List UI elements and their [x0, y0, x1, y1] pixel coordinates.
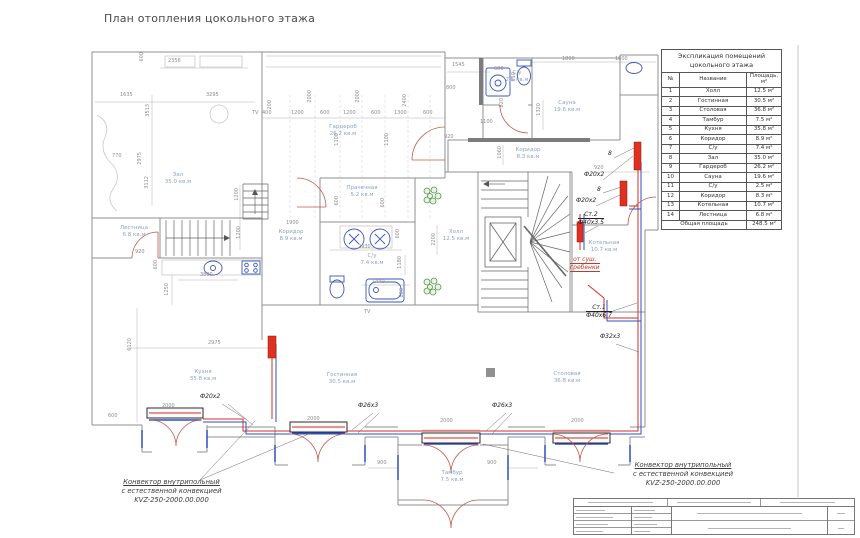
dim-label: 600: [371, 111, 381, 116]
schedule-row: 6Коридор8.9 м²: [662, 135, 782, 145]
title-block-project-name: [672, 507, 828, 535]
dim-label: 1200: [235, 188, 240, 201]
dim-label: 1100: [480, 120, 493, 125]
dim-label: 820: [500, 98, 505, 108]
dim-label: 2200: [432, 233, 437, 246]
schedule-row: 2Гостинная30.5 м²: [662, 97, 782, 107]
pipe-label-f20x2: Ф20х2: [200, 393, 220, 400]
room-label-kotelnaya: Котельная10.7 кв.м: [589, 240, 620, 254]
room-label-gostinaya: Гостинная30.5 кв.м: [327, 372, 357, 386]
dim-label: 920: [135, 250, 145, 255]
dim-label: 600: [423, 111, 433, 116]
dim-label: 1100: [335, 133, 340, 146]
schedule-title: Экспликация помещений цокольного этажа: [661, 49, 782, 72]
dim-label: 800: [446, 86, 456, 91]
dim-label: 1800: [562, 57, 575, 62]
dim-label: 1800: [615, 57, 628, 62]
title-block-top-row: [574, 499, 854, 507]
extension-lines: [290, 95, 430, 218]
room-label-prachechnaya: Прачечная5.2 кв.м: [346, 185, 377, 199]
title-block-dates: [632, 507, 672, 535]
room-label-lestnitsa: Лестница6.8 кв.м: [120, 225, 148, 239]
small-stairs: [243, 184, 268, 219]
thick-wall-corridor: [468, 138, 590, 142]
dim-label: 600: [154, 260, 159, 270]
pipe-label-f26x3: Ф26х3: [358, 402, 378, 409]
room-label-su1: С/у7.4 кв.м: [361, 253, 384, 267]
dim-label: 770: [112, 154, 122, 159]
schedule-row: 10Сауна19.6 м²: [662, 173, 782, 183]
dim-label: 3800: [200, 273, 213, 278]
dim-label: 1060: [498, 146, 503, 159]
dim-label: 2975: [138, 152, 143, 165]
dim-label: 600: [396, 229, 401, 239]
dim-label: 1200: [343, 111, 356, 116]
dim-label: 1440: [372, 280, 385, 285]
dim-label: 900: [377, 461, 387, 466]
dim-label: 600: [494, 67, 504, 72]
dim-label: 920: [444, 135, 454, 140]
dim-label: 1320: [537, 103, 542, 116]
riser-mark: 8: [608, 150, 612, 157]
dim-label: 1545: [452, 63, 465, 68]
title-block: [573, 498, 855, 535]
dim-label: 600: [381, 198, 386, 208]
schedule-row: 13Котельная10.7 м²: [662, 201, 782, 211]
room-label-kukhnya: Кухня35.8 кв.м: [190, 369, 216, 383]
dim-label: 2000: [162, 404, 175, 409]
dim-label: 900: [487, 461, 497, 466]
dim-label: 2000: [440, 419, 453, 424]
dim-label: 1250: [165, 283, 170, 296]
room-label-zal: Зал35.0 кв.м: [165, 172, 191, 186]
dim-label: 2000: [308, 90, 313, 103]
pipe-label-f32x3: Ф32х3: [600, 333, 620, 340]
corridor-stairs: [166, 220, 230, 256]
thick-wall-su: [479, 58, 483, 105]
schedule-row: 12Коридор8.3 м²: [662, 192, 782, 202]
dim-label: 6120: [128, 338, 133, 351]
door-swings: [132, 105, 656, 528]
dim-label: 2400: [403, 94, 408, 107]
schedule-row: 8Зал35.0 м²: [662, 154, 782, 164]
pipe-label-f20x2: Ф20х2: [576, 197, 596, 204]
dim-label: 2930: [358, 245, 371, 250]
tv-mark: TV: [252, 111, 258, 116]
dim-label: 2000: [571, 419, 584, 424]
schedule-row: 5Кухня35.8 м²: [662, 125, 782, 135]
dim-label: 800: [400, 288, 405, 298]
room-label-su2: С/у2.5 кв.м: [506, 70, 529, 84]
convector-annotation-right: Конвектор внутрипольный с естественной к…: [608, 461, 758, 489]
schedule-row: 9Гардероб26.2 м²: [662, 163, 782, 173]
room-label-koridor1: Коридор8.9 кв.м: [279, 229, 304, 243]
schedule-table: № Название Площадь, м² 1Холл12.5 м² 2Гос…: [661, 72, 782, 231]
dim-label: 2975: [208, 341, 221, 346]
riser-label-st1: Ст.1Ф40х6.7: [586, 304, 612, 319]
title-block-sheet-number: [828, 507, 854, 535]
schedule-total-row: Общая площадь 248.5 м²: [662, 220, 782, 230]
schedule-row: 3Столовая36.8 м²: [662, 106, 782, 116]
dim-label: 1180: [398, 256, 403, 269]
schedule-row: 1Холл12.5 м²: [662, 87, 782, 97]
dim-label: 1200: [291, 111, 304, 116]
riser-label-st2: Ст.2Ф40х3.5: [578, 211, 604, 226]
room-label-koridor2: Коридор8.3 кв.м: [516, 147, 541, 161]
room-label-kholl: Холл12.5 кв.м: [443, 229, 469, 243]
dim-label: 2356: [168, 59, 181, 64]
schedule-row: 14Лестница6.8 м²: [662, 211, 782, 221]
schedule-row: 4Тамбур7.5 м²: [662, 116, 782, 126]
pipe-label-f26x3: Ф26х3: [492, 402, 512, 409]
room-label-sauna: Сауна19.6 кв.м: [554, 100, 580, 114]
windows: [142, 420, 630, 480]
dim-label: 810: [512, 72, 517, 82]
dim-label: 1635: [120, 93, 133, 98]
dim-label: 2000: [356, 90, 361, 103]
convector-annotation-left: Конвектор внутрипольный с естественной к…: [84, 478, 259, 506]
dim-label: 1100: [385, 133, 390, 146]
schedule-row: 7С/у7.4 м²: [662, 144, 782, 154]
elevator-shaft: [485, 217, 521, 267]
schedule-row: 11С/у2.5 м²: [662, 182, 782, 192]
dim-label: 200: [268, 100, 273, 110]
dim-label: 3295: [206, 93, 219, 98]
schedule-header: № Название Площадь, м²: [662, 72, 782, 87]
page-title: План отопления цокольного этажа: [104, 12, 315, 25]
riser-mark: 8: [597, 186, 601, 193]
dim-label: 600: [335, 196, 340, 206]
room-label-stolovaya: Столовая36.8 кв.м: [553, 371, 580, 385]
dim-label: 600: [108, 414, 118, 419]
dim-label: 1900: [286, 221, 299, 226]
dim-label: 3112: [145, 176, 150, 189]
dim-label: 400: [262, 111, 272, 116]
heating-plan-sheet: План отопления цокольного этажа Зал35.0 …: [0, 0, 860, 538]
column: [486, 368, 495, 377]
dim-label: 1300: [394, 111, 407, 116]
dim-label: 1200: [237, 226, 242, 239]
pipe-label-f20x2: Ф20х2: [584, 171, 604, 178]
dim-label: 600: [140, 52, 145, 62]
tv-mark: TV: [364, 310, 370, 315]
dim-label: 600: [320, 111, 330, 116]
dry-towel-note: от суш.гребенки: [570, 256, 600, 272]
room-schedule: Экспликация помещений цокольного этажа №…: [661, 49, 782, 230]
title-block-signatures: [574, 507, 632, 535]
dim-label: 3513: [146, 104, 151, 117]
room-label-tambur: Тамбур7.5 кв.м: [441, 470, 464, 484]
dim-label: 2000: [307, 417, 320, 422]
